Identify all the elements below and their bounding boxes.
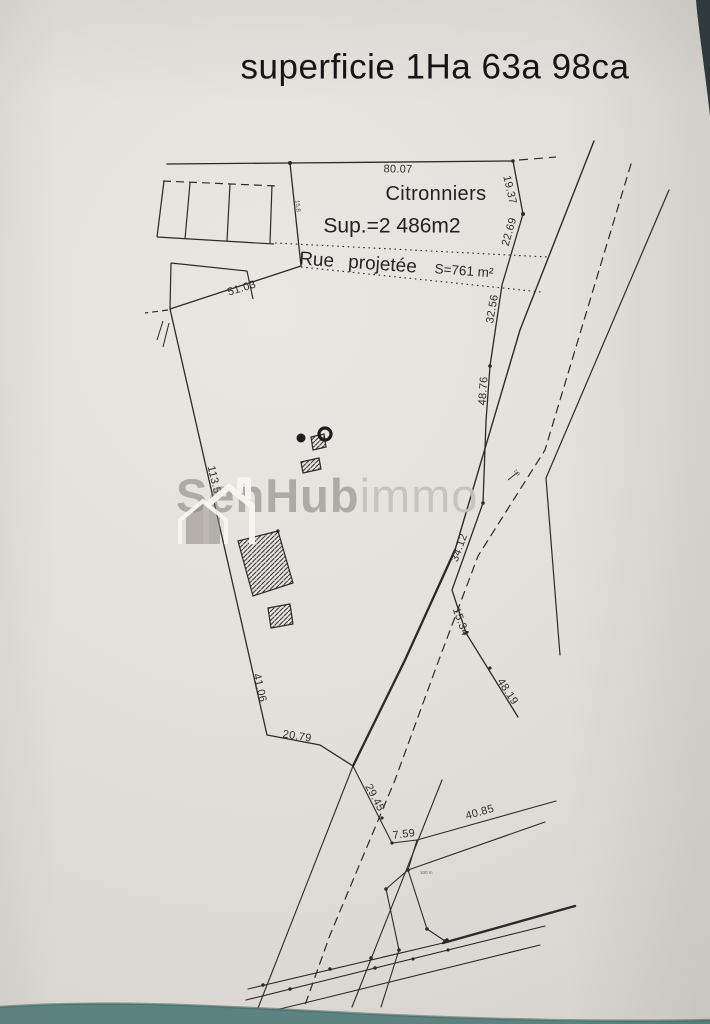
parcel-citronniers-label: Citronniers (385, 184, 486, 204)
corner-shadow-top-right (696, 0, 710, 116)
survey-drawing (0, 0, 710, 1024)
micro-measurement-left-edge: 15.8 (293, 200, 300, 212)
parcel-citronniers-area: Sup.=2 486m2 (323, 216, 460, 237)
survey-plan-photo: superficie 1Ha 63a 98ca Citronniers Sup.… (0, 0, 710, 1024)
measurement-48-76: 48.76 (478, 376, 491, 406)
survey-point-dots (261, 159, 525, 991)
hatched-building-icon (238, 434, 326, 628)
measurement-80-07: 80.07 (383, 164, 412, 176)
plan-title: superficie 1Ha 63a 98ca (241, 50, 630, 85)
micro-junction-label: 100 m (420, 871, 433, 876)
neighbor-parcels (157, 181, 277, 309)
south-junction-lines (246, 766, 575, 1009)
